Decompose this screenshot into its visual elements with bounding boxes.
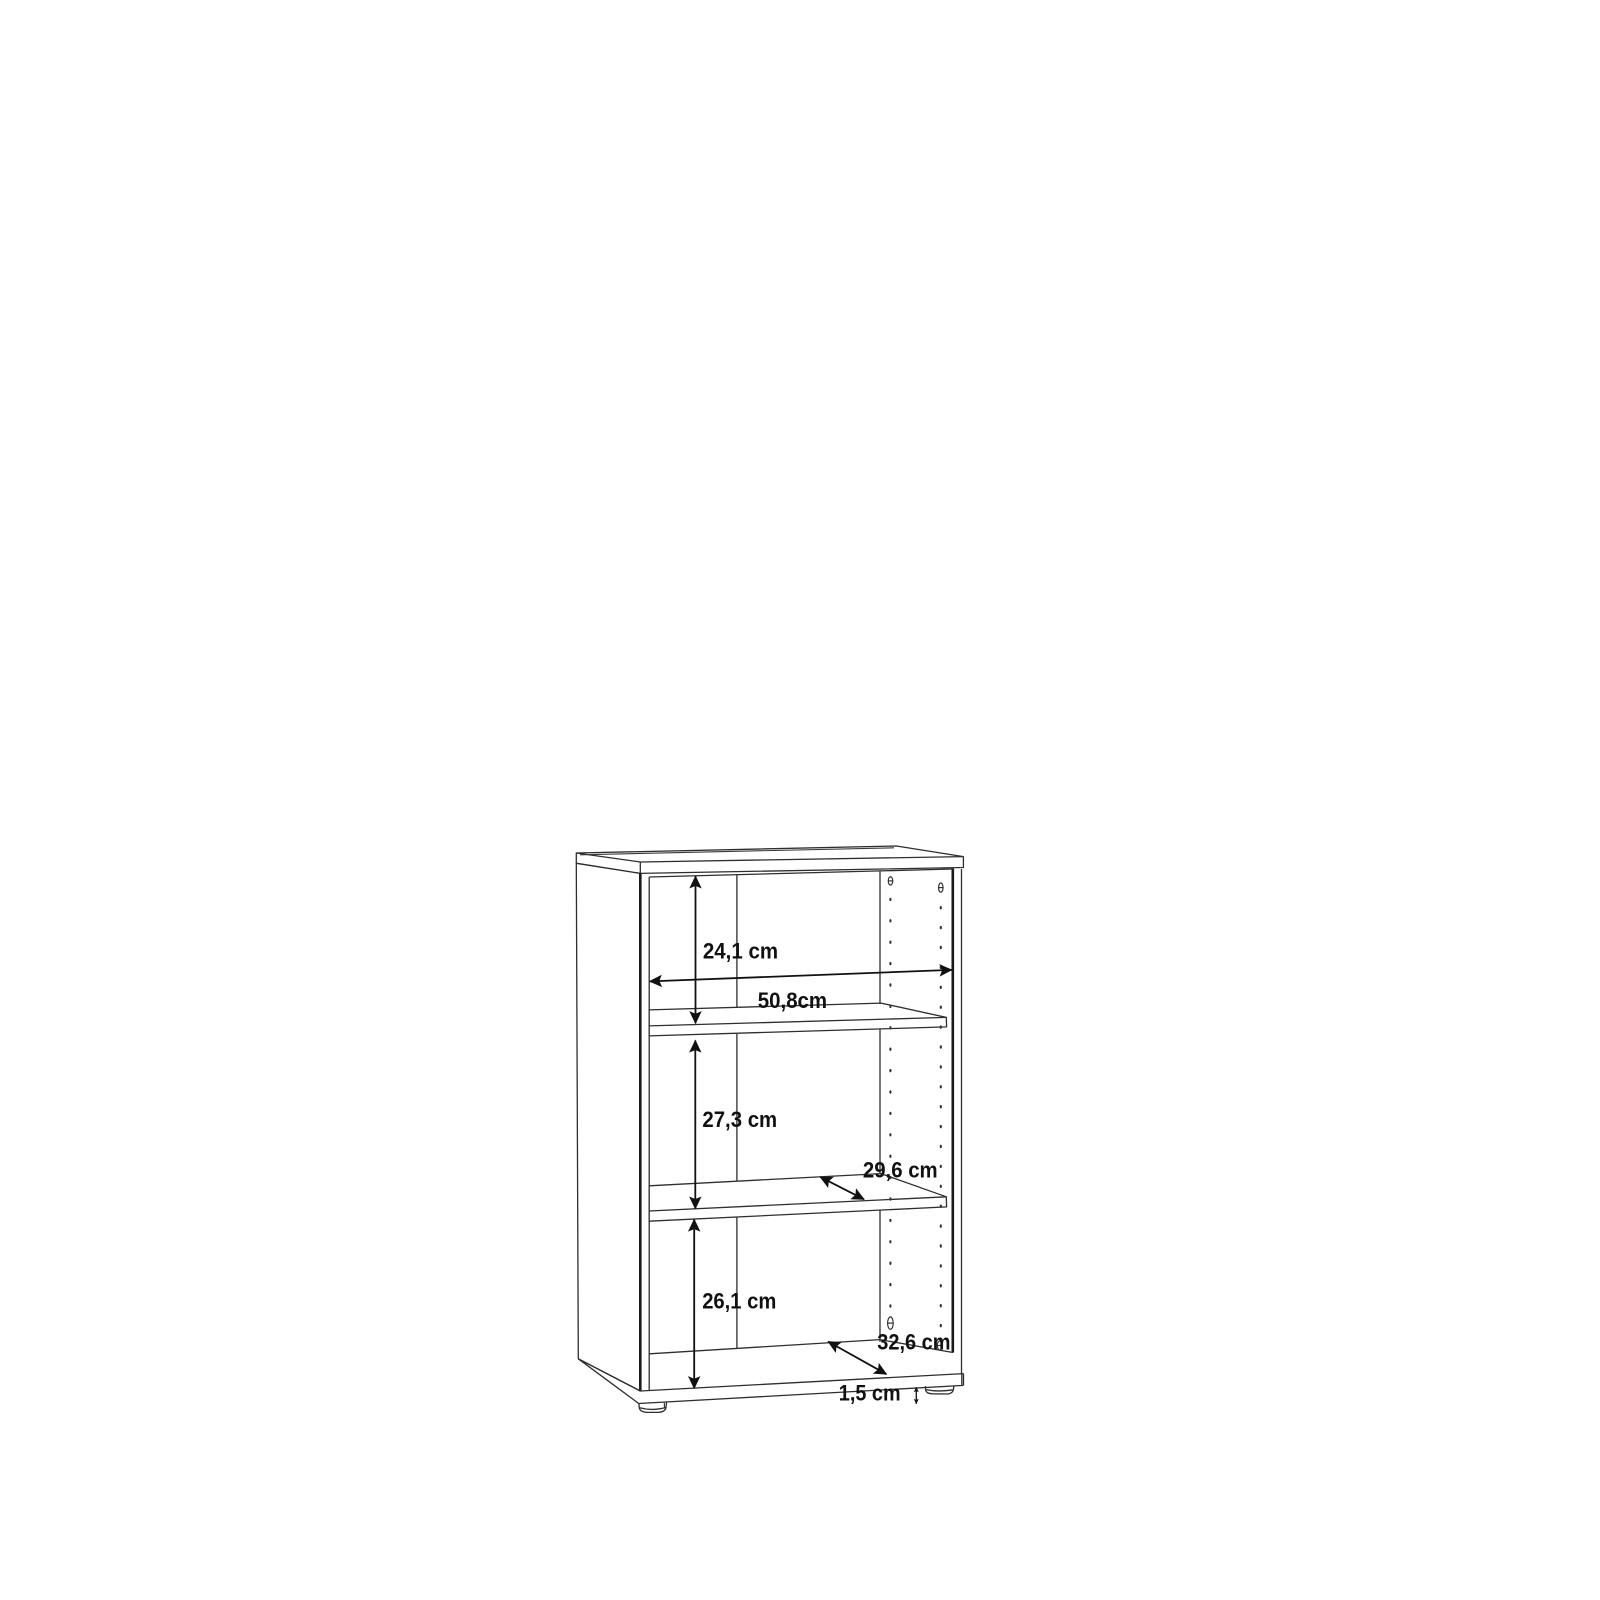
- svg-text:24,1 cm: 24,1 cm: [703, 939, 778, 964]
- svg-text:27,3 cm: 27,3 cm: [702, 1107, 777, 1132]
- svg-text:32,6 cm: 32,6 cm: [877, 1330, 950, 1355]
- svg-text:1,5 cm: 1,5 cm: [839, 1381, 901, 1406]
- svg-text:29,6 cm: 29,6 cm: [863, 1158, 938, 1183]
- svg-text:26,1 cm: 26,1 cm: [702, 1289, 776, 1314]
- svg-text:50,8cm: 50,8cm: [758, 988, 827, 1013]
